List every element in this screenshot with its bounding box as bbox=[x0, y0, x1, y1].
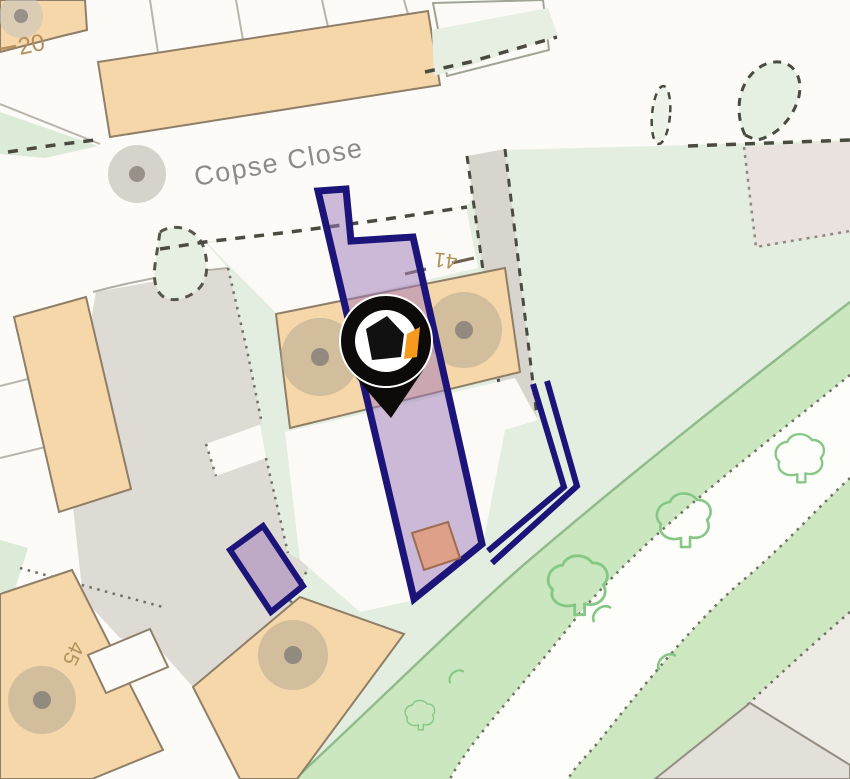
map-viewport[interactable]: Copse Close 20 41 45 bbox=[0, 0, 850, 779]
house-number-20: 20 bbox=[16, 29, 48, 61]
parcel-pink bbox=[744, 141, 850, 247]
map-canvas[interactable]: Copse Close 20 41 45 bbox=[0, 0, 850, 779]
house-number-41: 41 bbox=[433, 247, 459, 273]
